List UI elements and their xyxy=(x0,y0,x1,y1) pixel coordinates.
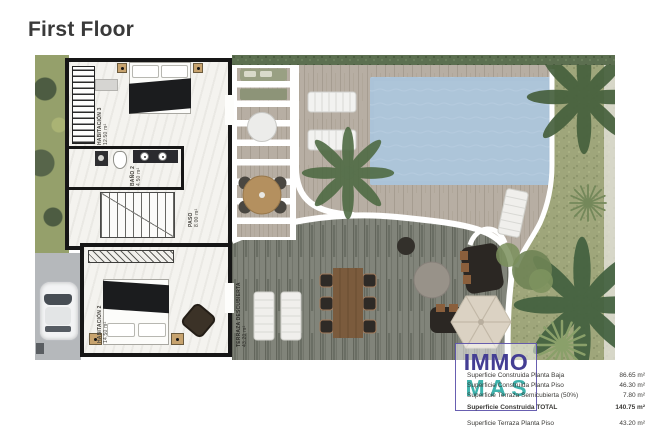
car-windshield xyxy=(44,294,72,305)
ottoman xyxy=(397,237,415,255)
sofa-cushion xyxy=(244,71,256,77)
room-area: 12.50 m² xyxy=(103,107,109,145)
room-area: 4.50 m² xyxy=(136,166,142,186)
summary-label: Superficie Construida Planta Piso xyxy=(467,381,564,391)
summary-value: 86.65 m² xyxy=(619,371,645,381)
summary-row: Superficie Construida Planta Piso 46.30 … xyxy=(467,381,645,391)
staircase xyxy=(100,192,175,238)
summary-value: 7.80 m² xyxy=(623,391,645,401)
dining-table-set xyxy=(320,268,376,338)
floor-plan-page: First Floor xyxy=(0,0,648,439)
nightstand xyxy=(117,63,127,73)
page-title: First Floor xyxy=(28,18,134,42)
deck-lounger xyxy=(281,292,301,340)
summary-value: 43.20 m² xyxy=(619,419,645,429)
summary-row-total: Superficie Construida TOTAL 140.75 m² xyxy=(467,403,645,413)
room-label-terraza: TERRAZA DESCUBIERTA 43.20 m² xyxy=(236,282,248,347)
wardrobe-hatch xyxy=(88,250,174,263)
sun-lounger xyxy=(308,92,356,112)
hedge xyxy=(232,55,615,65)
room-label-bano2: BAÑO 2 4.50 m² xyxy=(130,166,142,186)
summary-row: Superficie Construida Planta Baja 86.65 … xyxy=(467,371,645,381)
wall-bath-hall xyxy=(181,146,184,190)
deck-lounger xyxy=(254,292,274,340)
wall-bedroom3-south xyxy=(69,146,183,149)
sink xyxy=(140,152,149,161)
room-area: 14.50 m² xyxy=(103,305,109,343)
sink xyxy=(158,152,167,161)
pillow xyxy=(107,323,135,337)
room-area: 8.00 m² xyxy=(194,209,200,227)
round-daybed xyxy=(414,262,450,298)
bush xyxy=(496,243,520,267)
room-label-habitacion2: HABITACIÓN 2 14.50 m² xyxy=(97,305,109,343)
bush xyxy=(529,269,553,293)
summary-value: 46.30 m² xyxy=(619,381,645,391)
pergola xyxy=(232,62,296,240)
pillow xyxy=(132,65,159,78)
nightstand xyxy=(193,63,203,73)
pool-water-highlight xyxy=(374,81,548,181)
terrace-garden-area xyxy=(232,55,615,360)
car-rear-window xyxy=(45,326,71,332)
outdoor-dining-round xyxy=(239,176,287,214)
car-roof xyxy=(45,307,71,325)
summary-label: Superficie Terraza Semicubierta (50%) xyxy=(467,391,578,401)
pillow xyxy=(138,323,166,337)
toilet xyxy=(113,151,127,169)
summary-label: Superficie Terraza Planta Piso xyxy=(467,419,554,429)
side-garden xyxy=(35,55,69,255)
summary-row-terrace: Superficie Terraza Planta Piso 43.20 m² xyxy=(467,419,645,429)
terrace-door-opening xyxy=(225,95,234,125)
wardrobe xyxy=(72,66,95,144)
summary-row: Superficie Terraza Semicubierta (50%) 7.… xyxy=(467,391,645,401)
room-area: 43.20 m² xyxy=(242,282,248,347)
car-top-view xyxy=(39,281,79,341)
room-label-paso: PASO 8.00 m² xyxy=(188,209,200,227)
round-side-table xyxy=(248,113,277,142)
dresser xyxy=(95,79,118,91)
bed-blanket xyxy=(129,78,191,113)
summary-value: 140.75 m² xyxy=(615,403,645,413)
surface-summary: Superficie Construida Planta Baja 86.65 … xyxy=(467,371,645,429)
outdoor-bench xyxy=(240,89,287,101)
wall-bath-south xyxy=(69,187,183,190)
grass-plant xyxy=(570,185,606,221)
pillow xyxy=(161,65,188,78)
summary-label: Superficie Construida TOTAL xyxy=(467,403,557,413)
nightstand xyxy=(171,333,184,345)
room-label-habitacion3: HABITACIÓN 3 12.50 m² xyxy=(97,107,109,145)
floor-plan: HABITACIÓN 3 12.50 m² BAÑO 2 4.50 m² PAS… xyxy=(35,55,615,360)
bed-blanket xyxy=(103,281,169,314)
utility-box xyxy=(36,343,44,354)
shower xyxy=(95,151,108,166)
terrace-door-opening xyxy=(225,283,234,313)
palm-tree xyxy=(302,127,394,219)
summary-label: Superficie Construida Planta Baja xyxy=(467,371,564,381)
sofa-cushion xyxy=(260,71,272,77)
